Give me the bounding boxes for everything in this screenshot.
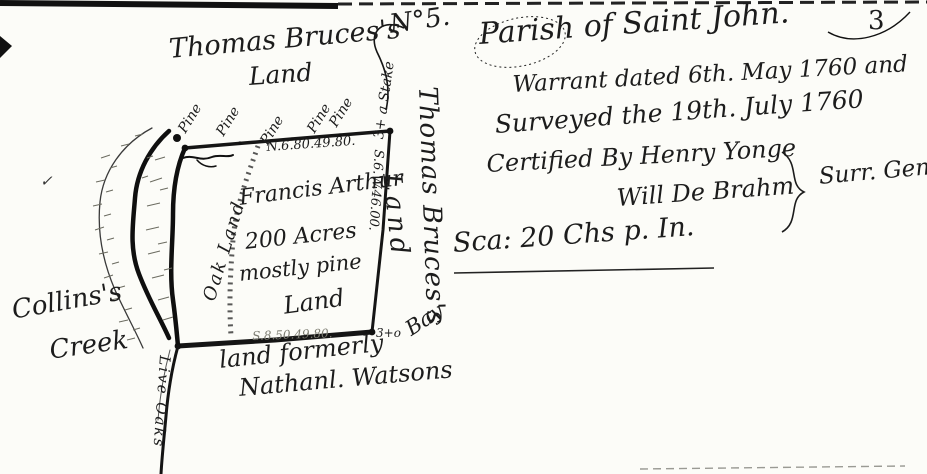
scale-underline [454, 268, 714, 273]
survey-plat-page: 3 N°5. Thomas Bruces's Land Pine Pine Pi… [0, 0, 927, 474]
east-owner-label: Thomas Bruces's [414, 86, 448, 325]
north-owner-label-2: Land [248, 60, 313, 89]
page-number: 3 [868, 8, 885, 34]
check-mark: ✓ [40, 174, 53, 189]
